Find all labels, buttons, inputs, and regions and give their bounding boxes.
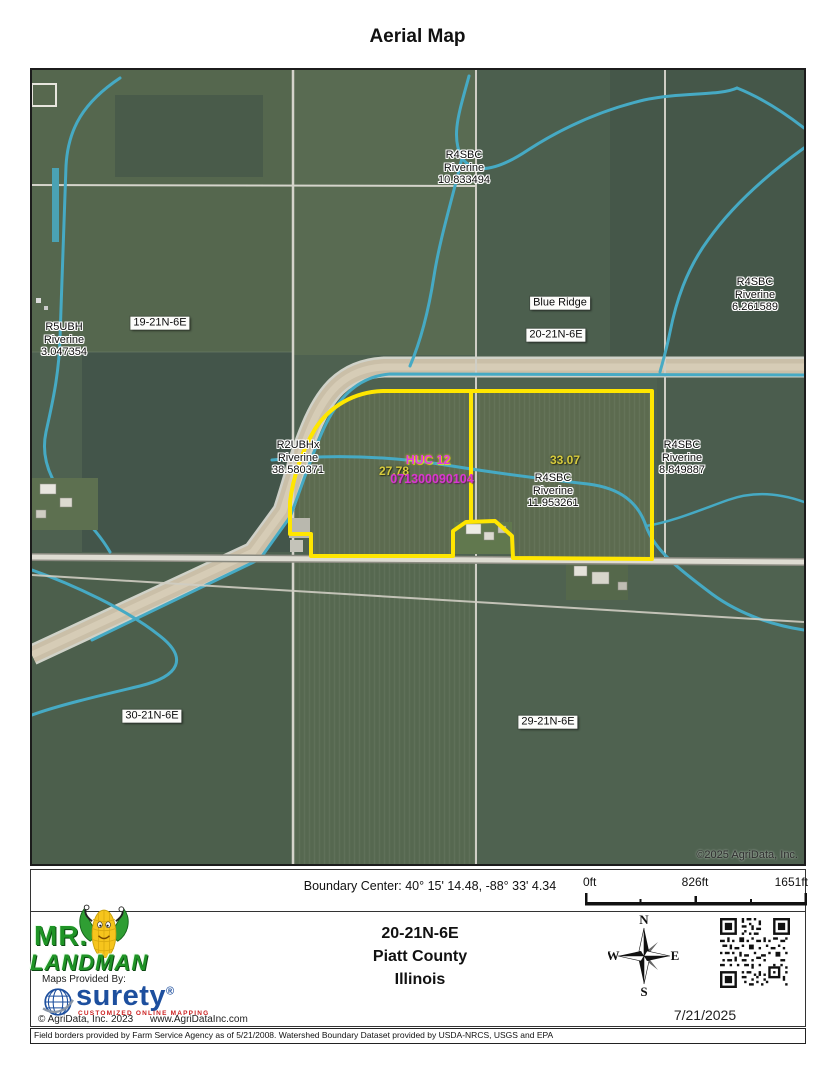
location-trs: 20-21N-6E [300,922,540,945]
section-label-30-21n-6e: 30-21N-6E [122,710,181,723]
registered-mark: ® [166,985,175,997]
aerial-map-report-page: Aerial Map [0,0,835,1080]
compass-n-label: N [639,912,649,927]
huc12-code-label: 071300090104 [390,472,473,486]
boundary-center-text: Boundary Center: 40° 15' 14.48, -88° 33'… [230,879,630,893]
footer-divider [30,911,806,912]
wetland-label-r2ubhx-38: R2UBHx Riverine 38.580371 [272,439,324,477]
huc12-title-label: HUC 12 [406,453,450,467]
agridata-url: www.AgriDataInc.com [150,1014,248,1025]
qr-code [720,918,790,988]
compass-w-label: W [608,948,620,963]
location-state: Illinois [300,968,540,991]
scale-label-mid: 826ft [660,875,730,889]
place-label-blue-ridge: Blue Ridge [530,297,590,310]
brand-mr: MR. [34,920,88,952]
section-label-20-21n-6e: 20-21N-6E [526,329,585,342]
wetland-label-r4sbc-8: R4SBC Riverine 8.849887 [659,439,705,477]
location-block: 20-21N-6E Piatt County Illinois [300,922,540,991]
scale-label-end: 1651ft [748,875,808,889]
wetland-label-r4sbc-10: R4SBC Riverine 10.833494 [438,149,490,187]
disclaimer-text: Field borders provided by Farm Service A… [30,1028,806,1044]
map-copyright: ©2025 AgriData, Inc. [696,849,798,861]
location-county: Piatt County [300,945,540,968]
page-title: Aerial Map [0,26,835,48]
wetland-label-r4sbc-11: R4SBC Riverine 11.953261 [527,472,578,510]
compass-e-label: E [671,948,680,963]
wetland-label-r5ubh-3: R5UBH Riverine 3.047354 [41,321,87,359]
section-label-29-21n-6e: 29-21N-6E [518,716,577,729]
wetland-label-r4sbc-6: R4SBC Riverine 6.261589 [732,276,778,314]
scale-label-start: 0ft [583,875,596,889]
report-date: 7/21/2025 [640,1007,770,1023]
aerial-map: R4SBC Riverine 10.833494 R4SBC Riverine … [30,68,806,866]
section-label-19-21n-6e: 19-21N-6E [130,317,189,330]
agridata-copyright: © AgriData, Inc. 2023 [38,1014,133,1025]
compass-rose: N E S W [608,912,680,1000]
surety-wordmark: surety® [76,980,175,1013]
compass-s-label: S [640,984,647,999]
scale-bar [585,891,807,907]
brand-landman: LANDMAN [30,950,148,976]
acreage-label-east: 33.07 [550,454,580,468]
